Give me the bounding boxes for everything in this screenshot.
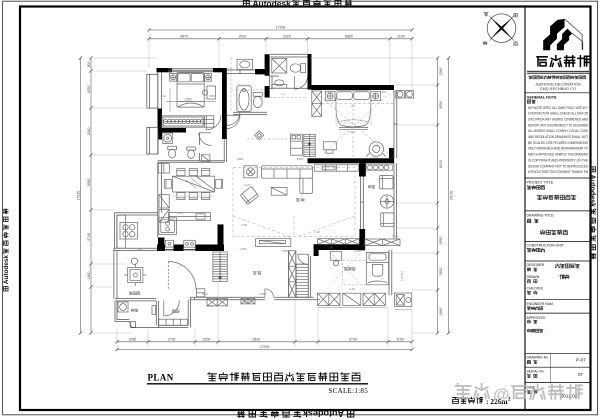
svg-text:MATCH APPROVED SAMPLE THIS DRA: MATCH APPROVED SAMPLE THIS DRAWING <box>528 153 588 157</box>
svg-text:2,485: 2,485 <box>353 249 361 253</box>
svg-text:CONTRACTOR SHALL CHECK ALL DIM: CONTRACTOR SHALL CHECK ALL DIM ON <box>528 112 588 116</box>
svg-text:PROJECT TITLE: PROJECT TITLE <box>527 180 554 184</box>
svg-text:DRAWN: DRAWN <box>527 275 540 279</box>
svg-text:1,640: 1,640 <box>348 130 356 134</box>
svg-text:1.33: 1.33 <box>372 155 378 159</box>
svg-text:ONLY MATERIALS AND WORKMANSHIP: ONLY MATERIALS AND WORKMANSHIP TO <box>528 147 588 151</box>
svg-text:SERIAL No.: SERIAL No. <box>527 370 545 374</box>
svg-text::: : <box>537 100 538 104</box>
svg-text:4.10: 4.10 <box>160 94 166 98</box>
svg-text:1.26: 1.26 <box>327 246 333 250</box>
svg-text:3320: 3320 <box>439 268 443 276</box>
svg-text:DRAWING No.: DRAWING No. <box>527 356 550 360</box>
svg-text:17290: 17290 <box>276 26 286 30</box>
svg-text:2.98: 2.98 <box>177 211 183 215</box>
svg-text:07: 07 <box>578 372 584 377</box>
svg-text:1.26: 1.26 <box>207 304 213 308</box>
svg-text:1960: 1960 <box>439 68 443 76</box>
svg-text:Autodesk: Autodesk <box>302 409 344 419</box>
svg-text:2220: 2220 <box>283 34 291 38</box>
svg-text:Autodesk: Autodesk <box>3 255 10 284</box>
svg-text:2500: 2500 <box>297 157 304 161</box>
svg-text:1100: 1100 <box>396 337 404 341</box>
svg-text:1.28: 1.28 <box>314 230 320 234</box>
svg-text:8860: 8860 <box>345 34 353 38</box>
svg-text:REPORT ANY DISCREPANCY TO DESI: REPORT ANY DISCREPANCY TO DESIGNER <box>528 123 588 127</box>
svg-text:2,160: 2,160 <box>243 183 251 187</box>
svg-text:3220: 3220 <box>87 86 91 94</box>
svg-text:880: 880 <box>138 247 143 251</box>
svg-text:Autodesk: Autodesk <box>252 0 291 8</box>
svg-text:2.40: 2.40 <box>349 287 355 291</box>
svg-text:1840: 1840 <box>87 128 91 136</box>
svg-text:850: 850 <box>328 90 333 94</box>
svg-text:IS COPYRIGHT AND PROPERTY OF T: IS COPYRIGHT AND PROPERTY OF THE <box>528 158 588 162</box>
svg-text:2300: 2300 <box>203 337 211 341</box>
svg-text:APPROVED: APPROVED <box>527 316 546 320</box>
svg-text:1860: 1860 <box>439 308 443 316</box>
svg-text:SITE PRIOR ANY WORKS COMMENCE: SITE PRIOR ANY WORKS COMMENCE AND <box>528 118 588 122</box>
svg-text:2150: 2150 <box>184 98 191 102</box>
svg-text:KEYNOTE SPEC ALL DIMS FIELD VE: KEYNOTE SPEC ALL DIMS FIELD VER 1FY <box>528 106 588 110</box>
svg-text:880: 880 <box>187 71 192 75</box>
svg-text:6010: 6010 <box>439 160 443 168</box>
svg-text:17290: 17290 <box>260 345 270 349</box>
svg-text:ENGINEER NUM.: ENGINEER NUM. <box>527 302 554 306</box>
svg-text:PLAN: PLAN <box>148 373 174 383</box>
svg-text:1,485: 1,485 <box>239 247 247 251</box>
svg-text::: : <box>545 329 546 333</box>
svg-text:2510: 2510 <box>239 34 247 38</box>
svg-text:1100: 1100 <box>397 34 405 38</box>
svg-text:Autodesk: Autodesk <box>588 175 596 208</box>
svg-text:1690: 1690 <box>237 157 244 161</box>
svg-text:1700: 1700 <box>168 337 176 341</box>
svg-text:3950: 3950 <box>439 101 443 109</box>
svg-text:DRAWING TITLE: DRAWING TITLE <box>527 213 555 217</box>
svg-text:DESIGNER: DESIGNER <box>527 263 545 267</box>
svg-text:850: 850 <box>382 90 387 94</box>
svg-text:2280: 2280 <box>129 337 137 341</box>
svg-text:15120: 15120 <box>76 191 80 201</box>
svg-text:BE SCALED USE FIGURED DIMENSIO: BE SCALED USE FIGURED DIMENSIONS <box>528 141 588 145</box>
svg-text:2.0: 2.0 <box>351 104 355 108</box>
svg-text:SCALE:1:85: SCALE:1:85 <box>328 387 368 395</box>
svg-text:600: 600 <box>228 67 233 71</box>
svg-text:CMQ KECHBNG CO: CMQ KECHBNG CO <box>540 87 576 91</box>
svg-text:4870: 4870 <box>180 34 188 38</box>
svg-text:1.685: 1.685 <box>281 249 289 253</box>
svg-text:800: 800 <box>209 94 214 98</box>
svg-text:JUZHONG DECORATION: JUZHONG DECORATION <box>535 82 581 86</box>
svg-text:WITHOUT WRITTEN CONSENT THANKS: WITHOUT WRITTEN CONSENT THANKS FM <box>528 170 588 174</box>
svg-text:GENERAL NOTE: GENERAL NOTE <box>527 95 558 99</box>
svg-text:@: @ <box>493 385 510 404</box>
svg-text:2.05: 2.05 <box>241 223 247 227</box>
svg-text:DESIGN COMPANY NOT TO REPRODUC: DESIGN COMPANY NOT TO REPRODUCED <box>528 164 588 168</box>
svg-text:P-07: P-07 <box>576 357 586 362</box>
svg-text:4.7: 4.7 <box>281 92 285 96</box>
svg-text:2990: 2990 <box>439 237 443 245</box>
svg-text:1,075.6: 1,075.6 <box>400 271 404 281</box>
svg-text:16130: 16130 <box>450 191 454 201</box>
svg-text:2740: 2740 <box>87 233 91 241</box>
svg-text:860: 860 <box>202 292 207 296</box>
svg-text:ALL WORKS SHALL COMPLY LOCAL C: ALL WORKS SHALL COMPLY LOCAL CODE <box>528 129 588 133</box>
svg-text:5730: 5730 <box>349 337 357 341</box>
svg-text:CONSTRUCTION UNIT: CONSTRUCTION UNIT <box>527 243 565 247</box>
svg-text:3620: 3620 <box>253 337 261 341</box>
svg-text:AND REGULATION DRAWINGS SHALL: AND REGULATION DRAWINGS SHALL NOT <box>528 135 589 139</box>
svg-text:1460: 1460 <box>87 272 91 280</box>
svg-text:1.1: 1.1 <box>244 301 248 305</box>
svg-text:1.16: 1.16 <box>392 234 398 238</box>
svg-text:1.530: 1.530 <box>258 292 266 296</box>
svg-text:5980: 5980 <box>87 179 91 187</box>
svg-text:CHECKED: CHECKED <box>527 286 544 290</box>
svg-text:800: 800 <box>87 62 91 68</box>
